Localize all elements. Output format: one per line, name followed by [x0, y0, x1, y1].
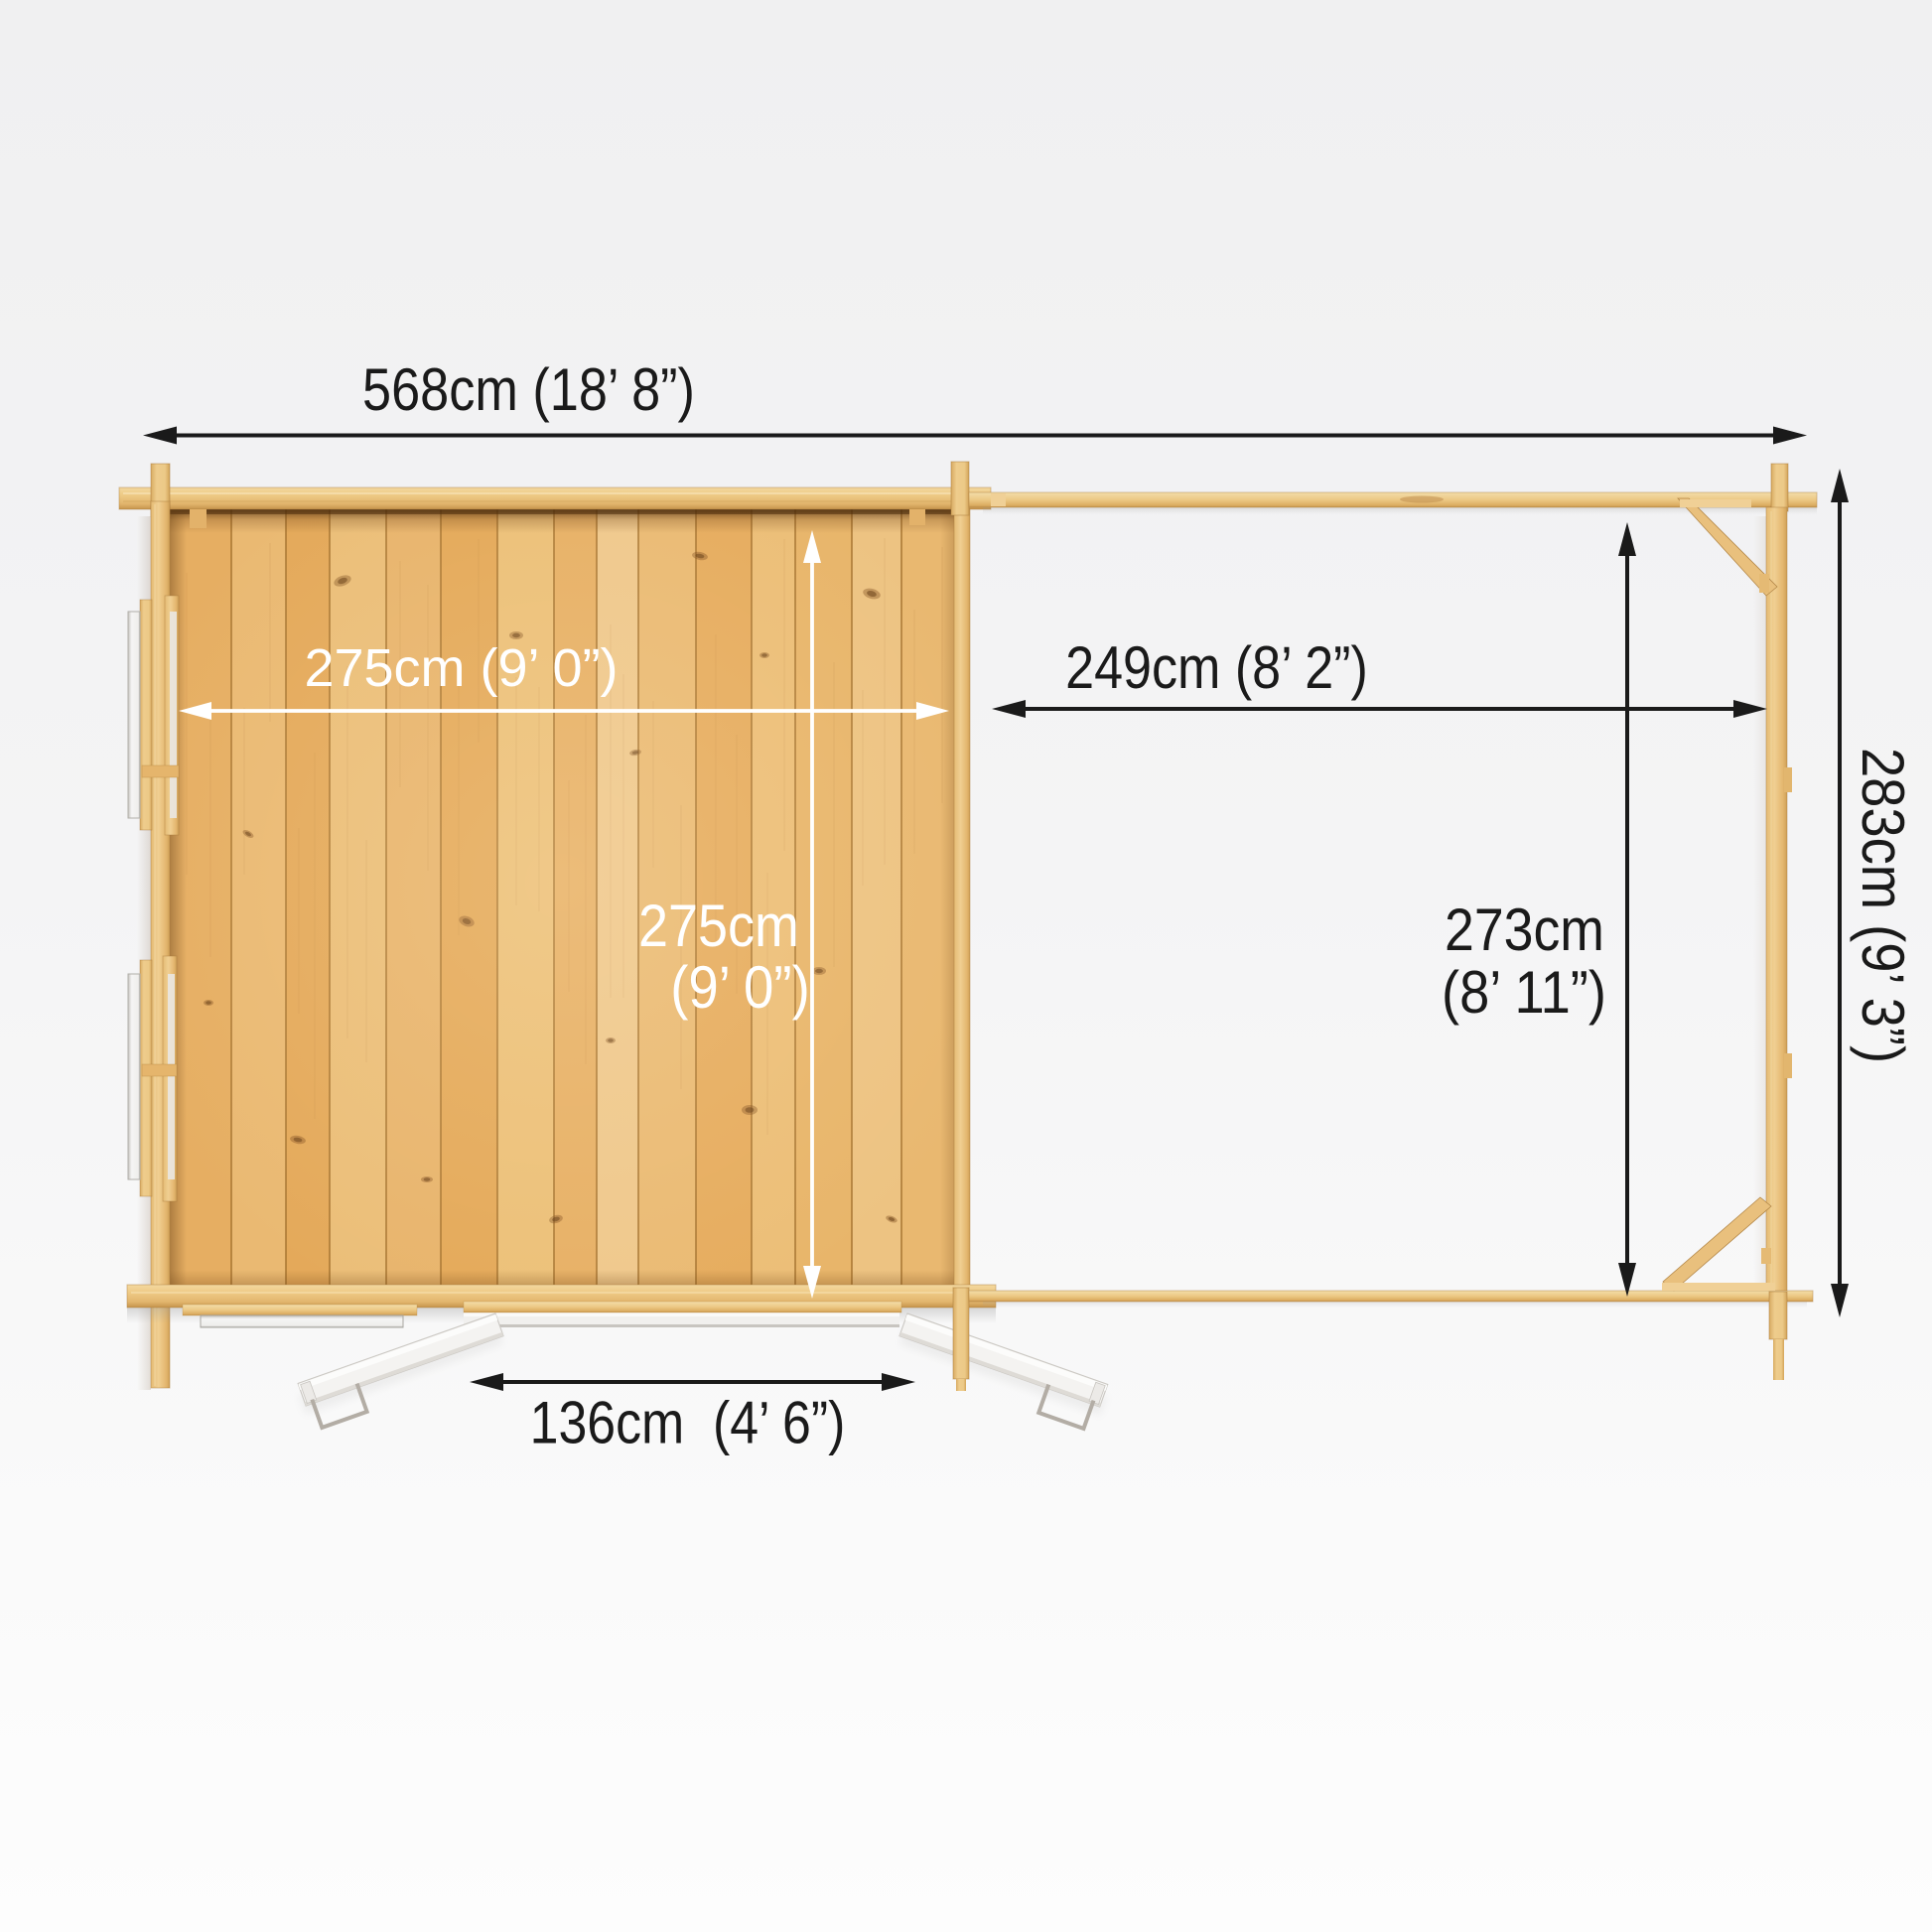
svg-text:(9’ 0”): (9’ 0”) [670, 955, 810, 1022]
svg-text:273cm: 273cm [1445, 897, 1604, 963]
svg-text:275cm: 275cm [638, 893, 799, 959]
svg-text:136cm (4’ 6”): 136cm (4’ 6”) [530, 1389, 846, 1455]
svg-text:568cm (18’ 8”): 568cm (18’ 8”) [362, 356, 695, 423]
svg-text:249cm (8’ 2”): 249cm (8’ 2”) [1065, 634, 1368, 701]
svg-text:275cm (9’ 0”): 275cm (9’ 0”) [304, 638, 618, 698]
svg-text:(8’ 11”): (8’ 11”) [1442, 960, 1606, 1027]
svg-text:283cm (9’ 3”): 283cm (9’ 3”) [1849, 748, 1915, 1063]
